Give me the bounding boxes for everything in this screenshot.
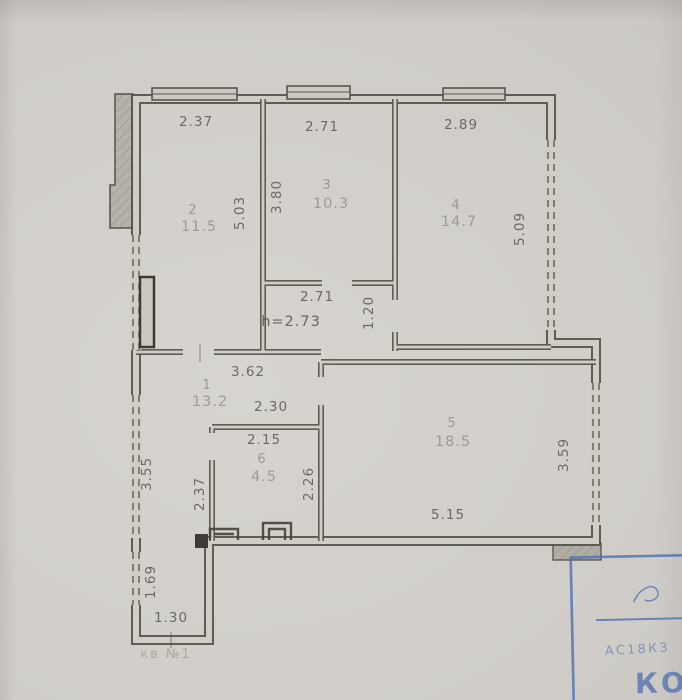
room1-area: 13.2 <box>192 394 228 410</box>
window-top-room4 <box>443 88 505 100</box>
dim-inner-corridor-depth: 1.20 <box>361 296 377 330</box>
ceiling-height-label: h=2.73 <box>261 314 321 330</box>
dimension-labels: 2.37 2.71 2.89 5.03 3.80 5.09 2.71 h=2.7… <box>139 114 572 626</box>
dim-hall-alcove-width: 2.30 <box>254 399 288 415</box>
dim-room5-depth: 3.59 <box>556 438 572 472</box>
window-top-room2 <box>152 88 237 100</box>
dim-room6-depth-left: 2.37 <box>192 477 208 511</box>
room4-area: 14.7 <box>441 214 477 230</box>
stamp-caption: АС18КЗ <box>605 639 671 658</box>
dim-hall-width: 3.62 <box>231 364 265 380</box>
room6-number: 6 <box>257 452 266 467</box>
apartment-label: кв №1 <box>140 647 191 662</box>
room2-number: 2 <box>188 203 197 218</box>
dim-hall-wall-left: 3.55 <box>139 457 155 491</box>
outer-walls <box>136 99 596 640</box>
window-top-room3 <box>287 86 350 99</box>
room6-area: 4.5 <box>251 469 277 485</box>
dim-room6-width: 2.15 <box>247 432 281 448</box>
stamp: АС18КЗ КО <box>571 555 682 700</box>
room4-number: 4 <box>451 198 460 213</box>
stamp-divider <box>596 618 682 620</box>
dim-room4-width: 2.89 <box>444 117 478 133</box>
vent-shaft <box>140 277 154 347</box>
dim-room4-depth: 5.09 <box>512 212 528 246</box>
dim-room3-depth: 3.80 <box>269 180 285 214</box>
dim-room2-width: 2.37 <box>179 114 213 130</box>
floor-plan-scan: 2.37 2.71 2.89 5.03 3.80 5.09 2.71 h=2.7… <box>0 0 682 700</box>
window-right-room4 <box>546 140 556 330</box>
dim-entry-width: 1.30 <box>154 610 188 626</box>
stamp-initials: КО <box>635 666 682 700</box>
room3-area: 10.3 <box>313 196 349 212</box>
floor-plan-drawing: 2.37 2.71 2.89 5.03 3.80 5.09 2.71 h=2.7… <box>0 0 682 700</box>
dim-room5-width: 5.15 <box>431 507 465 523</box>
room1-number: 1 <box>202 378 211 393</box>
window-left-entry <box>131 552 141 605</box>
stamp-signature-squiggle <box>633 587 658 603</box>
room3-number: 3 <box>322 178 331 193</box>
wall-block-room6 <box>195 534 208 548</box>
window-right-room5 <box>591 383 601 525</box>
room5-number: 5 <box>447 416 456 431</box>
room5-area: 18.5 <box>435 434 471 450</box>
wall-pier-top-left <box>110 94 133 228</box>
dim-room6-depth-right: 2.26 <box>301 467 317 501</box>
dim-room3-width: 2.71 <box>305 119 339 135</box>
dim-inner-corridor-width: 2.71 <box>300 289 334 305</box>
dim-room2-depth: 5.03 <box>232 196 248 230</box>
room2-area: 11.5 <box>181 219 217 235</box>
dim-entry-depth: 1.69 <box>143 565 159 599</box>
room-labels: 2 11.5 3 10.3 4 14.7 1 13.2 6 4.5 5 18.5 <box>181 178 477 485</box>
